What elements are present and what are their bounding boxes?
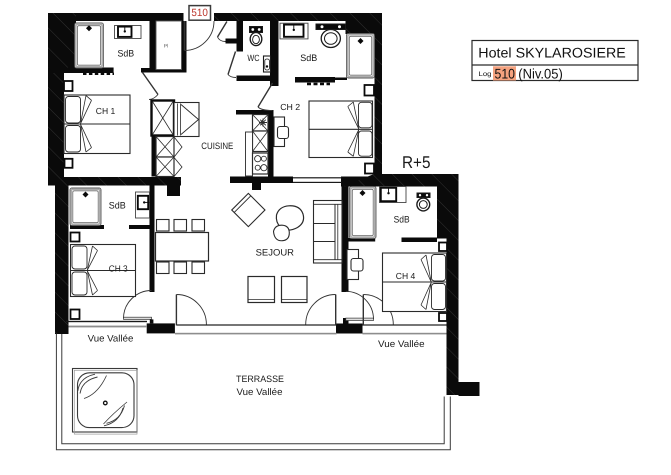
- svg-text:CH 1: CH 1: [96, 106, 116, 116]
- svg-text:TERRASSE: TERRASSE: [236, 374, 284, 384]
- svg-text:510: 510: [191, 7, 208, 19]
- svg-text:Pl: Pl: [164, 44, 168, 50]
- svg-text:SEJOUR: SEJOUR: [256, 247, 295, 257]
- svg-text:SdB: SdB: [109, 200, 126, 211]
- svg-text:(Niv.05): (Niv.05): [518, 66, 563, 82]
- svg-text:CH 2: CH 2: [280, 102, 300, 112]
- svg-text:Vue Vallée: Vue Vallée: [237, 387, 283, 398]
- svg-text:WC: WC: [247, 53, 260, 63]
- svg-text:CUISINE: CUISINE: [201, 141, 233, 151]
- svg-text:SdB: SdB: [394, 213, 410, 224]
- svg-text:SdB: SdB: [300, 52, 317, 63]
- svg-text:Hotel SKYLAROSIERE: Hotel SKYLAROSIERE: [478, 44, 626, 60]
- svg-text:510: 510: [495, 66, 516, 82]
- svg-text:CH 4: CH 4: [396, 271, 416, 281]
- svg-text:Vue Vallée: Vue Vallée: [378, 339, 425, 350]
- svg-text:CH 3: CH 3: [109, 264, 128, 274]
- svg-text:SdB: SdB: [118, 47, 135, 58]
- svg-text:Vue Vallée: Vue Vallée: [88, 334, 134, 345]
- svg-text:R+5: R+5: [402, 153, 431, 172]
- svg-text:Log: Log: [479, 71, 492, 78]
